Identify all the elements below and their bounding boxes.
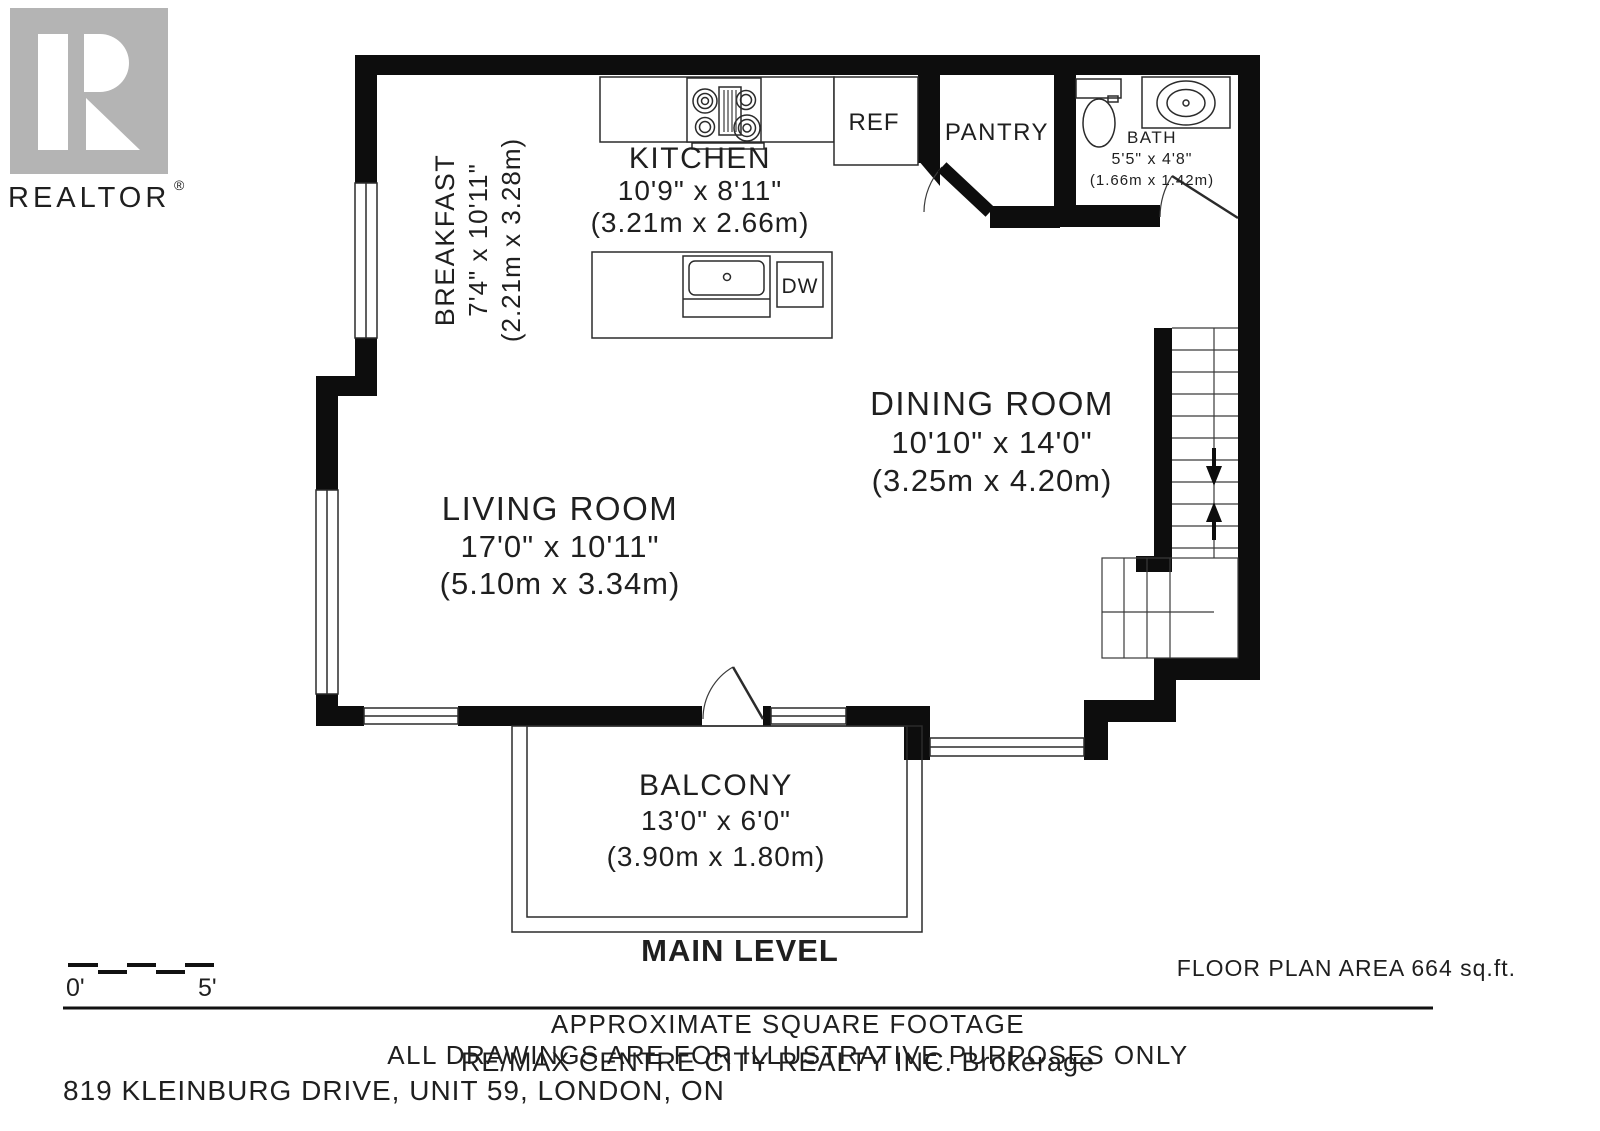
wall-segment: [1238, 55, 1260, 680]
breakfast-label: BREAKFAST: [430, 154, 460, 327]
property-address: 819 KLEINBURG DRIVE, UNIT 59, LONDON, ON: [63, 1075, 725, 1106]
living-room-dimensions-metric: (5.10m x 3.34m): [440, 566, 681, 601]
wall-segment: [355, 55, 1260, 75]
dw-label: DW: [782, 275, 819, 298]
bath-label: BATH: [1127, 128, 1177, 147]
disclaimer-line-1: APPROXIMATE SQUARE FOOTAGE: [551, 1009, 1025, 1039]
wall-segment: [355, 55, 377, 183]
bath-dimensions-metric: (1.66m x 1.42m): [1090, 172, 1214, 189]
balcony-dimensions-metric: (3.90m x 1.80m): [607, 841, 826, 872]
dining-room-dimensions-metric: (3.25m x 4.20m): [872, 463, 1113, 498]
wall-segment: [904, 706, 930, 760]
realtor-registered-mark: ®: [174, 177, 185, 193]
wall-segment: [918, 75, 940, 163]
realtor-logo-text: REALTOR: [8, 182, 170, 214]
stove-icon: [687, 78, 764, 149]
stair-wall: [1154, 328, 1172, 558]
scale-start-label: 0': [66, 974, 85, 1002]
disclaimer-line-2: ALL DRAWINGS ARE FOR ILLUSTRATIVE PURPOS…: [387, 1040, 1189, 1070]
dining-room-dimensions-imperial: 10'10" x 14'0": [891, 425, 1092, 460]
wall-segment: [990, 206, 1060, 228]
kitchen-dimensions-imperial: 10'9" x 8'11": [618, 175, 782, 206]
bath-sink-icon: [1142, 77, 1230, 128]
bath-dimensions-imperial: 5'5" x 4'8": [1112, 151, 1193, 168]
ref-label: REF: [849, 109, 900, 136]
wall-segment: [1054, 75, 1076, 207]
floor-plan-page: REALTOR ®: [0, 0, 1600, 1131]
living-room-label: LIVING ROOM: [442, 490, 679, 527]
balcony-label: BALCONY: [639, 769, 793, 802]
scale-end-label: 5': [198, 974, 217, 1002]
floor-area-label: FLOOR PLAN AREA 664 sq.ft.: [1177, 955, 1516, 981]
balcony-dimensions-imperial: 13'0" x 6'0": [641, 805, 791, 836]
wall-segment: [763, 706, 771, 726]
living-room-dimensions-imperial: 17'0" x 10'11": [461, 529, 660, 564]
pantry-label: PANTRY: [945, 119, 1049, 146]
wall-segment: [458, 706, 702, 726]
level-title: MAIN LEVEL: [641, 933, 839, 968]
kitchen-island: DW: [592, 252, 832, 338]
wall-segment: [316, 376, 338, 490]
breakfast-dimensions-imperial: 7'4" x 10'11": [463, 163, 493, 317]
wall-segment: [1054, 205, 1160, 227]
realtor-logo-r-stem: [38, 34, 68, 150]
breakfast-dimensions-metric: (2.21m x 3.28m): [496, 138, 526, 342]
refrigerator: REF: [834, 77, 918, 165]
kitchen-dimensions-metric: (3.21m x 2.66m): [591, 207, 810, 238]
realtor-logo-icon: REALTOR ®: [8, 8, 185, 214]
floor-plan-canvas: REALTOR ®: [0, 0, 1600, 1131]
wall-segment: [316, 706, 364, 726]
dining-room-label: DINING ROOM: [870, 385, 1114, 422]
kitchen-label: KITCHEN: [629, 142, 771, 175]
